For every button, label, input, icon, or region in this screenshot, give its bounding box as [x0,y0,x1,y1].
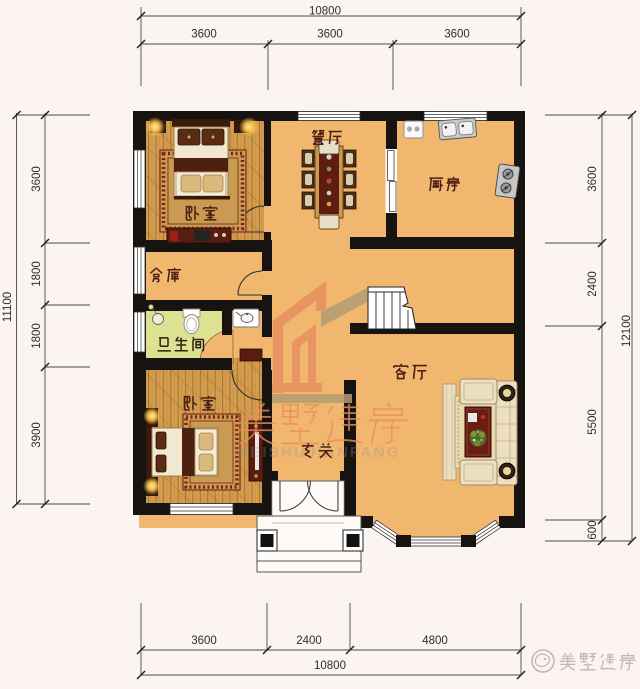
svg-text:10800: 10800 [314,660,346,672]
svg-text:3900: 3900 [31,422,43,448]
svg-text:2400: 2400 [587,271,599,297]
svg-text:4800: 4800 [422,635,448,647]
svg-text:1800: 1800 [31,261,43,287]
svg-text:3600: 3600 [31,166,43,192]
svg-text:MEISHUJIANFANG: MEISHUJIANFANG [236,444,401,461]
svg-text:12100: 12100 [621,315,633,347]
svg-text:3600: 3600 [191,29,217,41]
svg-text:11100: 11100 [2,292,14,322]
svg-text:3600: 3600 [191,635,217,647]
svg-text:1800: 1800 [31,323,43,349]
svg-text:10800: 10800 [309,6,341,18]
svg-text:2400: 2400 [296,635,322,647]
svg-text:3600: 3600 [317,29,343,41]
svg-text:600: 600 [587,520,599,539]
svg-text:3600: 3600 [444,29,470,41]
svg-text:3600: 3600 [587,166,599,192]
svg-text:5500: 5500 [587,409,599,435]
